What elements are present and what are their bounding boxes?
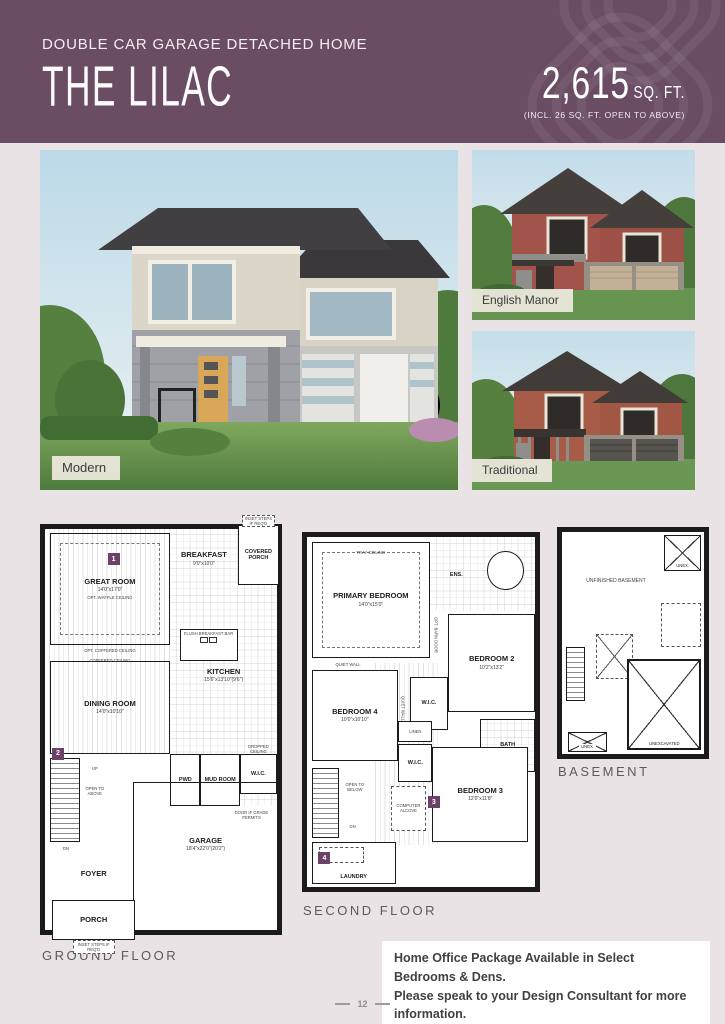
room-unex-top: UNEX. <box>664 535 701 571</box>
room-unfinished-basement: UNFINISHED BASEMENT <box>573 563 658 599</box>
square-footage: 2,615 SQ. FT. (INCL. 26 SQ. FT. OPEN TO … <box>506 58 685 120</box>
annotation-dropped-ceiling: DROPPED CEILING <box>240 744 277 754</box>
ensuite-tub <box>487 551 523 590</box>
option-marker-1: 1 <box>108 553 120 565</box>
modern-house-rendering <box>40 150 458 490</box>
option-marker-2: 2 <box>52 748 64 760</box>
room-bedroom-3: BEDROOM 3 12'0"x11'8" <box>432 747 528 842</box>
annotation-grade-door: DOOR IF GRADE PERMITS <box>231 810 273 820</box>
photo-label-traditional: Traditional <box>472 459 552 482</box>
annotation-quiet-wall-h: QUIET WALL <box>325 662 371 667</box>
annotation-dn: DN <box>54 846 77 851</box>
floorplan-ground: GREAT ROOM 14'0"x17'0" OPT. WAFFLE CEILI… <box>40 524 282 935</box>
annotation-barn-door: OPT. BARN DOOR <box>434 614 439 656</box>
photo-english-manor-elevation: English Manor <box>472 150 695 320</box>
brochure-page: DOUBLE CAR GARAGE DETACHED HOME THE LILA… <box>0 0 725 1024</box>
room-great-room: GREAT ROOM 14'0"x17'0" OPT. WAFFLE CEILI… <box>50 533 171 645</box>
room-garage: GARAGE 18'4"x22'0"(20'2") <box>133 782 277 906</box>
header-banner: DOUBLE CAR GARAGE DETACHED HOME THE LILA… <box>0 0 725 143</box>
room-porch: PORCH <box>52 900 136 940</box>
sqft-unit: SQ. FT. <box>633 82 685 102</box>
annotation-opt-coffered: OPT. COFFERED CEILING <box>59 648 161 653</box>
annotation-open-below: OPEN TO BELOW <box>341 782 368 792</box>
basement-caption: BASEMENT <box>558 764 650 779</box>
kitchen-island: FLUSH BREAKFAST BAR <box>180 629 238 661</box>
annotation-coffered: COFFERED CEILING <box>59 658 161 663</box>
second-floor-caption: SECOND FLOOR <box>303 903 437 918</box>
annotation-inset-steps-top: INSET STEPS IF REQ'D <box>242 515 274 527</box>
annotation-tray-ceiling: TRAY CEILING <box>313 550 430 555</box>
room-bedroom-4: BEDROOM 4 10'0"x10'10" <box>312 670 399 761</box>
photo-label-english-manor: English Manor <box>472 289 573 312</box>
sqft-value: 2,615 <box>542 58 630 107</box>
room-wic-2: W.I.C. <box>398 744 432 783</box>
room-unexcavated: UNEXCAVATED <box>627 659 701 750</box>
basement-utility-area <box>661 603 701 647</box>
room-computer-alcove: COMPUTER ALCOVE <box>391 786 425 832</box>
annotation-quiet-wall-v: QUIET WALL <box>400 684 405 733</box>
room-ensuite: ENS. <box>430 542 482 609</box>
sqft-note: (INCL. 26 SQ. FT. OPEN TO ABOVE) <box>506 110 685 120</box>
photo-modern-elevation: Modern <box>40 150 458 490</box>
room-unex-bottom: UNEX. <box>568 732 608 752</box>
option-marker-3: 3 <box>428 796 440 808</box>
room-covered-porch: COVERED PORCH <box>238 525 280 585</box>
room-dining-room: DINING ROOM 14'0"x10'10" <box>50 661 171 753</box>
home-type-subtitle: DOUBLE CAR GARAGE DETACHED HOME <box>42 36 367 53</box>
note-line-1: Home Office Package Available in Select … <box>394 949 698 987</box>
page-title: THE LILAC <box>42 59 263 115</box>
room-primary-bedroom: TRAY CEILING PRIMARY BEDROOM 14'0"x15'0" <box>312 542 431 658</box>
photo-label-modern: Modern <box>52 456 120 480</box>
room-breakfast: BREAKFAST 9'0"x10'0" <box>170 533 237 585</box>
annotation-up: UP <box>82 766 108 771</box>
basement-stairs <box>566 647 584 700</box>
page-number: 12 <box>0 999 725 1009</box>
ground-stairs <box>50 758 80 842</box>
floorplan-basement: UNFINISHED BASEMENT UNEX. UNEXCAVATED UN… <box>557 527 709 759</box>
second-stairs <box>312 768 339 838</box>
room-foyer: FOYER <box>64 854 124 894</box>
option-marker-4: 4 <box>318 852 330 864</box>
photo-traditional-elevation: Traditional <box>472 331 695 490</box>
floorplan-second: TRAY CEILING PRIMARY BEDROOM 14'0"x15'0"… <box>302 532 540 892</box>
home-office-note: Home Office Package Available in Select … <box>382 941 710 1024</box>
annotation-open-above: OPEN TO ABOVE <box>82 786 108 796</box>
room-bedroom-2: BEDROOM 2 10'2"x13'2" <box>448 614 535 712</box>
annotation-dn-2: DN <box>341 824 364 829</box>
annotation-inset-steps-bottom: INSET STEPS IF REQ'D <box>73 940 115 954</box>
annotation-waffle-ceiling: OPT. WAFFLE CEILING <box>87 595 132 600</box>
